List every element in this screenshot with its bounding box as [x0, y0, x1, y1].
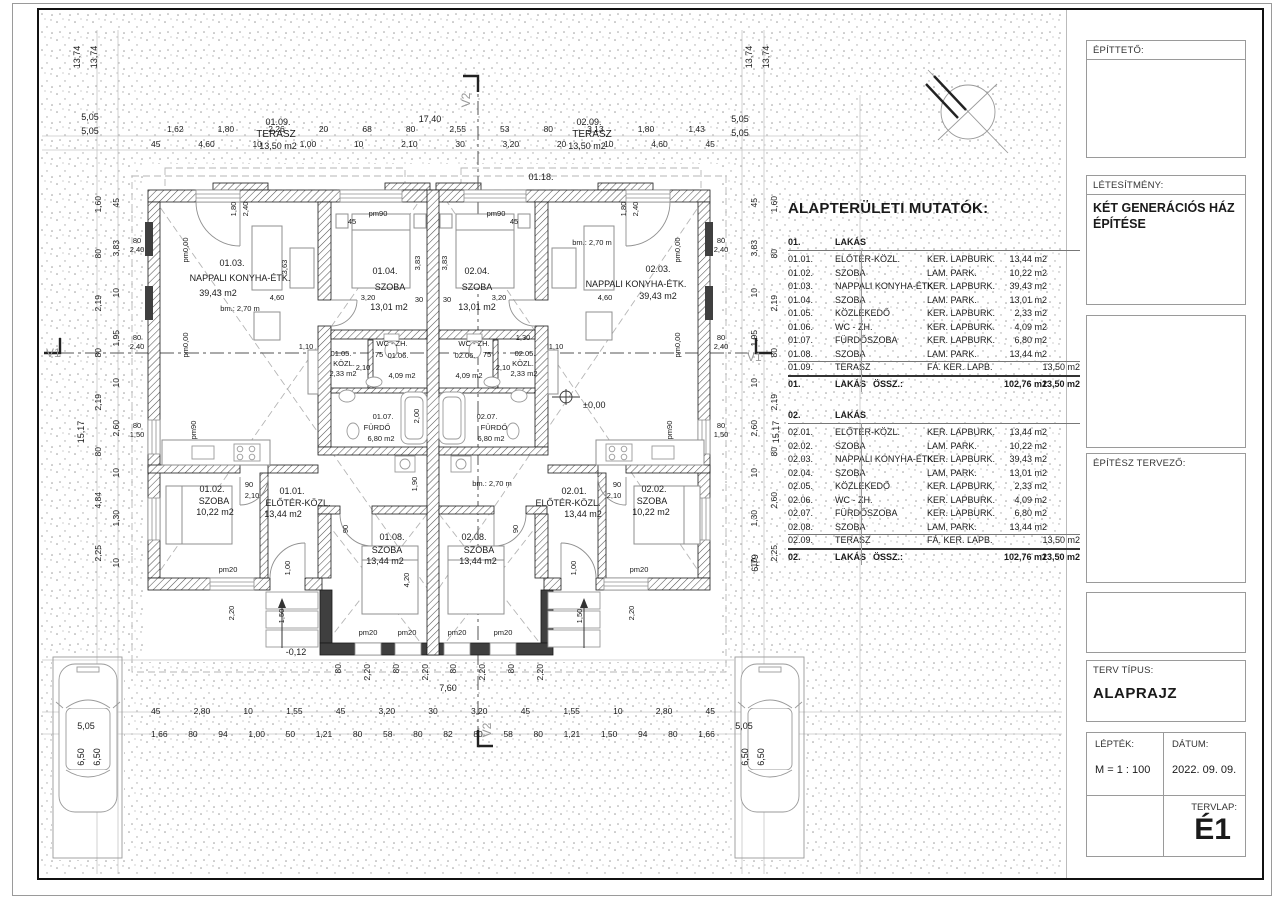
dim-chain-top-2: 454,60101,00102,10303,2020104,6045 — [150, 139, 716, 149]
dimension-value: 80 — [352, 729, 363, 739]
table-cell: 2,33 m2 — [1014, 307, 1047, 321]
project-value: KÉT GENERÁCIÓS HÁZ ÉPÍTÉSE — [1087, 195, 1245, 238]
dimension-value: 1,80 — [637, 124, 656, 134]
svg-text:13,44 m2: 13,44 m2 — [264, 509, 302, 519]
dim-chain-left-outer: 1,60802,19802,19804,842,25 — [92, 196, 104, 562]
svg-text:2,20: 2,20 — [227, 606, 236, 621]
table-cell: LAM. PARK. — [927, 294, 977, 308]
svg-text:02.02.: 02.02. — [641, 484, 666, 494]
svg-text:FÜRDŐ: FÜRDŐ — [364, 423, 391, 432]
dimension-value: 80 — [447, 664, 459, 673]
flat-code: 02. — [788, 409, 801, 423]
dimension-value: 80 — [93, 348, 103, 357]
svg-text:V2: V2 — [459, 92, 473, 107]
dimension-value: 2,25 — [769, 545, 779, 562]
table-cell: 13,44 m2 — [1009, 253, 1047, 267]
dimension-value: 2,80 — [193, 706, 212, 716]
svg-text:30: 30 — [443, 295, 451, 304]
table-cell: FÜRDŐSZOBA — [835, 507, 898, 521]
table-cell: 13,01 m2 — [1009, 294, 1047, 308]
table-cell: LAM. PARK. — [927, 521, 977, 535]
svg-text:13,44 m2: 13,44 m2 — [366, 556, 404, 566]
dim-chain-right-inner: 453,83101,95102,60101,3010 — [748, 198, 760, 568]
total-terrace-area: 13,50 m2 — [1042, 551, 1080, 565]
svg-text:39,43 m2: 39,43 m2 — [199, 288, 237, 298]
svg-text:6,80 m2: 6,80 m2 — [477, 434, 504, 443]
svg-text:02.01.: 02.01. — [561, 486, 586, 496]
svg-text:pm20: pm20 — [630, 565, 649, 574]
svg-text:02.07.: 02.07. — [477, 412, 498, 421]
svg-text:WC - ZH.: WC - ZH. — [458, 339, 489, 348]
flat-1-total: 01. LAKÁS ÖSSZ.: 102,76 m2 13,50 m2 — [788, 378, 1080, 392]
table-cell: 13,44 m2 — [1009, 348, 1047, 362]
dimension-value: 68 — [361, 124, 372, 134]
svg-text:SZOBA: SZOBA — [375, 282, 406, 292]
table-cell: 01.08. — [788, 348, 813, 362]
dimension-value: 1,66 — [697, 729, 716, 739]
table-cell: 01.06. — [788, 321, 813, 335]
svg-text:2,40: 2,40 — [631, 202, 640, 217]
svg-text:pm20: pm20 — [359, 628, 378, 637]
svg-text:2,00: 2,00 — [412, 409, 421, 424]
dimension-value: 80 — [667, 729, 678, 739]
svg-text:17,40: 17,40 — [419, 114, 442, 124]
table-row: 02.09.TERASZFÁ. KER. LAPB.13,50 m2 — [788, 534, 1080, 548]
svg-text:SZOBA: SZOBA — [637, 496, 668, 506]
svg-text:1,80: 1,80 — [619, 202, 628, 217]
svg-text:01.06.: 01.06. — [388, 351, 409, 360]
total-code: 01. — [788, 378, 801, 392]
table-cell: 39,43 m2 — [1009, 280, 1047, 294]
table-cell: KER. LAPBURK. — [927, 253, 995, 267]
dimension-value: 10 — [603, 139, 614, 149]
dimension-value: 10 — [111, 378, 121, 387]
dimension-value: 80 — [533, 729, 544, 739]
dimension-value: 10 — [749, 288, 759, 297]
svg-text:±0,00: ±0,00 — [583, 400, 605, 410]
dimension-value: 82 — [442, 729, 453, 739]
table-cell: 02.06. — [788, 494, 813, 508]
table-cell: 02.01. — [788, 426, 813, 440]
dimension-value: 50 — [285, 729, 296, 739]
table-row: 02.01.ELŐTÉR-KÖZL.KER. LAPBURK.13,44 m2 — [788, 426, 1080, 440]
svg-text:SZOBA: SZOBA — [372, 545, 403, 555]
table-cell: NAPPALI KONYHA-ÉTK. — [835, 453, 936, 467]
table-cell: 4,09 m2 — [1014, 494, 1047, 508]
svg-text:pm0,00: pm0,00 — [181, 332, 190, 357]
table-cell: KÖZLEKEDŐ — [835, 480, 890, 494]
table-cell: 01.04. — [788, 294, 813, 308]
dim-chain-bottom-1: 452,80101,55453,20303,20451,55102,8045 — [150, 706, 716, 716]
svg-text:90: 90 — [511, 525, 520, 533]
svg-text:pm90: pm90 — [487, 209, 506, 218]
svg-text:SZOBA: SZOBA — [462, 282, 493, 292]
table-cell: LAM. PARK. — [927, 267, 977, 281]
svg-text:pm20: pm20 — [494, 628, 513, 637]
table-row: 01.05.KÖZLEKEDŐKER. LAPBURK.2,33 m2 — [788, 307, 1080, 321]
flat-1-header: 01. LAKÁS — [788, 236, 1080, 250]
dimension-value: 1,95 — [749, 330, 759, 347]
table-cell: 01.01. — [788, 253, 813, 267]
dimension-value: 2,19 — [93, 394, 103, 411]
dimension-value: 1,55 — [562, 706, 581, 716]
svg-text:80: 80 — [717, 421, 725, 430]
table-cell: 01.07. — [788, 334, 813, 348]
svg-text:KÖZL.: KÖZL. — [512, 359, 534, 368]
table-row: 01.03.NAPPALI KONYHA-ÉTK.KER. LAPBURK.39… — [788, 280, 1080, 294]
svg-text:13,74: 13,74 — [744, 46, 754, 69]
total-area: 102,76 m2 — [1004, 551, 1047, 565]
table-cell: 13,44 m2 — [1009, 426, 1047, 440]
project-label: LÉTESÍTMÉNY: — [1087, 176, 1245, 195]
svg-text:90: 90 — [613, 480, 621, 489]
dimension-value: 30 — [454, 139, 465, 149]
svg-text:3,20: 3,20 — [361, 293, 376, 302]
table-cell: 01.05. — [788, 307, 813, 321]
dimension-value: 80 — [332, 664, 344, 673]
scale-value: M = 1 : 100 — [1087, 750, 1163, 776]
dimension-value: 45 — [150, 706, 161, 716]
svg-text:02.05.: 02.05. — [515, 349, 536, 358]
svg-text:1,10: 1,10 — [299, 342, 314, 351]
total-label: ÖSSZ.: — [873, 551, 903, 565]
table-row: 02.04.SZOBALAM. PARK.13,01 m2 — [788, 467, 1080, 481]
svg-text:6,50: 6,50 — [76, 748, 86, 766]
svg-text:2,40: 2,40 — [241, 202, 250, 217]
svg-text:02.03.: 02.03. — [645, 264, 670, 274]
dimension-value: 2,10 — [400, 139, 419, 149]
titleblock-project-box: LÉTESÍTMÉNY: KÉT GENERÁCIÓS HÁZ ÉPÍTÉSE — [1086, 175, 1246, 305]
table-cell: KÖZLEKEDŐ — [835, 307, 890, 321]
table-cell: 02.08. — [788, 521, 813, 535]
dimension-value: 1,62 — [166, 124, 185, 134]
svg-text:45: 45 — [510, 217, 518, 226]
svg-text:1,10: 1,10 — [549, 342, 564, 351]
car-left — [56, 664, 120, 812]
dimension-value: 2,80 — [655, 706, 674, 716]
svg-text:2,40: 2,40 — [714, 342, 729, 351]
dimension-value: 3,20 — [378, 706, 397, 716]
svg-text:4,09 m2: 4,09 m2 — [388, 371, 415, 380]
dimension-value: 80 — [93, 249, 103, 258]
svg-text:NAPPALI KONYHA-ÉTK.: NAPPALI KONYHA-ÉTK. — [190, 273, 291, 283]
svg-text:1,80: 1,80 — [229, 202, 238, 217]
table-cell: KER. LAPBURK. — [927, 426, 995, 440]
svg-text:3,83: 3,83 — [413, 256, 422, 271]
project-value-line1: KÉT GENERÁCIÓS HÁZ — [1093, 201, 1239, 217]
table-row: 02.03.NAPPALI KONYHA-ÉTK.KER. LAPBURK.39… — [788, 453, 1080, 467]
area-table-title: ALAPTERÜLETI MUTATÓK: — [788, 200, 988, 217]
table-row: 02.08.SZOBALAM. PARK.13,44 m2 — [788, 521, 1080, 535]
titleblock-empty-box-1 — [1086, 315, 1246, 448]
table-cell: KER. LAPBURK. — [927, 494, 995, 508]
svg-text:bm.: 2,70 m: bm.: 2,70 m — [572, 238, 612, 247]
svg-text:13,44 m2: 13,44 m2 — [459, 556, 497, 566]
dimension-value: 1,66 — [150, 729, 169, 739]
svg-text:ELŐTÉR-KÖZL.: ELŐTÉR-KÖZL. — [265, 498, 330, 508]
table-row: 01.01.ELŐTÉR-KÖZL.KER. LAPBURK.13,44 m2 — [788, 253, 1080, 267]
dim-chain-bottom-2: 1,6680941,00501,21805880828058801,211,50… — [150, 729, 716, 739]
table-cell: 4,09 m2 — [1014, 321, 1047, 335]
svg-text:90: 90 — [245, 480, 253, 489]
svg-text:1,90: 1,90 — [410, 477, 419, 492]
scale-label: LÉPTÉK: — [1087, 733, 1163, 750]
dimension-value: 45 — [704, 139, 715, 149]
dim-chain-right-outer: 1,60802,19802,19802,602,25 — [768, 196, 780, 562]
table-cell: 6,80 m2 — [1014, 334, 1047, 348]
svg-text:2,40: 2,40 — [130, 342, 145, 351]
table-cell: 13,50 m2 — [1042, 361, 1080, 375]
table-cell: WC - ZH. — [835, 321, 873, 335]
table-cell: KER. LAPBURK. — [927, 307, 995, 321]
svg-text:10,22 m2: 10,22 m2 — [632, 507, 670, 517]
svg-text:SZOBA: SZOBA — [464, 545, 495, 555]
svg-text:13,01 m2: 13,01 m2 — [458, 302, 496, 312]
svg-text:80: 80 — [717, 236, 725, 245]
dimension-value: 3,20 — [502, 139, 521, 149]
dimension-value: 4,84 — [93, 492, 103, 509]
area-table: ALAPTERÜLETI MUTATÓK: 01. LAKÁS 01.01.EL… — [788, 200, 1080, 580]
svg-text:pm0,00: pm0,00 — [181, 237, 190, 262]
total-label: ÖSSZ.: — [873, 378, 903, 392]
svg-text:30: 30 — [415, 295, 423, 304]
table-cell: 10,22 m2 — [1009, 440, 1047, 454]
dim-chain-top-1: 1,621,802,262068802,5553803,131,801,43 — [166, 124, 706, 134]
dimension-value: 80 — [390, 664, 402, 673]
svg-text:pm90: pm90 — [665, 421, 674, 440]
dimension-value: 2,55 — [448, 124, 467, 134]
dimension-value: 45 — [520, 706, 531, 716]
svg-text:bm.: 2,70 m: bm.: 2,70 m — [220, 304, 260, 313]
svg-text:02.06.: 02.06. — [455, 351, 476, 360]
dimension-value: 10 — [242, 706, 253, 716]
dimension-value: 2,19 — [769, 295, 779, 312]
table-cell: 02.02. — [788, 440, 813, 454]
dimension-value: 45 — [749, 198, 759, 207]
dimension-value: 80 — [505, 664, 517, 673]
titleblock-architect-box: ÉPÍTÉSZ TERVEZŐ: — [1086, 453, 1246, 583]
svg-text:WC - ZH.: WC - ZH. — [376, 339, 407, 348]
car-right — [738, 664, 802, 812]
table-cell: ELŐTÉR-KÖZL. — [835, 253, 900, 267]
table-row: 01.09.TERASZFÁ. KER. LAPB.13,50 m2 — [788, 361, 1080, 375]
dimension-value: 45 — [111, 198, 121, 207]
table-row: 01.02.SZOBALAM. PARK.10,22 m2 — [788, 267, 1080, 281]
svg-text:6,80 m2: 6,80 m2 — [367, 434, 394, 443]
dimension-value: 1,60 — [769, 196, 779, 213]
dimension-value: 80 — [769, 348, 779, 357]
dimension-value: 2,19 — [769, 394, 779, 411]
dimension-value: 20 — [318, 124, 329, 134]
svg-text:01.07.: 01.07. — [373, 412, 394, 421]
dimension-value: 80 — [769, 249, 779, 258]
svg-text:01.05.: 01.05. — [331, 349, 352, 358]
svg-text:4,60: 4,60 — [598, 293, 613, 302]
plan-type-label: TERV TÍPUS: — [1087, 661, 1245, 679]
dimension-value: 1,95 — [111, 330, 121, 347]
svg-text:6,50: 6,50 — [740, 748, 750, 766]
titleblock-plan-type-box: TERV TÍPUS: ALAPRAJZ — [1086, 660, 1246, 722]
svg-text:SZOBA: SZOBA — [199, 496, 230, 506]
dimension-value: 1,80 — [217, 124, 236, 134]
dimension-value: 1,21 — [563, 729, 582, 739]
dimension-value: 45 — [335, 706, 346, 716]
dim-chain-left-inner: 453,83101,95102,60101,3010 — [110, 198, 122, 568]
svg-text:02.08.: 02.08. — [461, 532, 486, 542]
drawing-sheet: 01.03. NAPPALI KONYHA-ÉTK. 39,43 m2 02.0… — [0, 0, 1280, 911]
dimension-value: 45 — [150, 139, 161, 149]
dimension-value: 1,00 — [299, 139, 318, 149]
table-cell: KER. LAPBURK. — [927, 334, 995, 348]
table-cell: KER. LAPBURK. — [927, 507, 995, 521]
svg-text:80: 80 — [133, 421, 141, 430]
sheet-number: É1 — [1164, 813, 1245, 847]
table-cell: 01.03. — [788, 280, 813, 294]
total-area: 102,76 m2 — [1004, 378, 1047, 392]
date-value: 2022. 09. 09. — [1164, 750, 1245, 776]
total-code: 02. — [788, 551, 801, 565]
dimension-value: 2,20 — [419, 664, 431, 681]
dimension-value: 1,43 — [687, 124, 706, 134]
svg-text:80: 80 — [133, 333, 141, 342]
dimension-value: 80 — [543, 124, 554, 134]
svg-text:2,20: 2,20 — [627, 606, 636, 621]
table-cell: KER. LAPBURK. — [927, 321, 995, 335]
dimension-value: 2,60 — [749, 420, 759, 437]
table-cell: NAPPALI KONYHA-ÉTK. — [835, 280, 936, 294]
dimension-value: 1,30 — [111, 510, 121, 527]
table-row: 02.07.FÜRDŐSZOBAKER. LAPBURK.6,80 m2 — [788, 507, 1080, 521]
svg-text:1,00: 1,00 — [569, 561, 578, 576]
dim-chain-window-bottom: 802,20802,20802,20802,20 — [332, 664, 546, 692]
dimension-value: 2,19 — [93, 295, 103, 312]
svg-text:01.03.: 01.03. — [219, 258, 244, 268]
table-cell: 02.04. — [788, 467, 813, 481]
svg-text:5,05: 5,05 — [77, 721, 95, 731]
svg-text:01.01.: 01.01. — [279, 486, 304, 496]
svg-text:KÖZL.: KÖZL. — [333, 359, 355, 368]
dimension-value: 80 — [93, 447, 103, 456]
flat-name: LAKÁS — [835, 236, 866, 250]
svg-text:2,40: 2,40 — [130, 245, 145, 254]
svg-text:5,05: 5,05 — [81, 126, 99, 136]
date-cell: DÁTUM: 2022. 09. 09. — [1163, 733, 1245, 795]
flat-code: 01. — [788, 236, 801, 250]
table-row: 01.07.FÜRDŐSZOBAKER. LAPBURK.6,80 m2 — [788, 334, 1080, 348]
table-cell: 39,43 m2 — [1009, 453, 1047, 467]
titleblock-client-box: ÉPÍTTETŐ: — [1086, 40, 1246, 158]
sheet-label: TERVLAP: — [1164, 796, 1245, 813]
table-cell: 02.09. — [788, 534, 813, 548]
dimension-value: 3,83 — [749, 240, 759, 257]
dimension-value: 10 — [749, 558, 759, 567]
svg-text:45: 45 — [348, 217, 356, 226]
svg-text:80: 80 — [133, 236, 141, 245]
dimension-value: 1,21 — [315, 729, 334, 739]
svg-text:80: 80 — [717, 333, 725, 342]
dimension-value: 2,20 — [361, 664, 373, 681]
dimension-value: 94 — [217, 729, 228, 739]
svg-text:3,63: 3,63 — [280, 260, 289, 275]
svg-text:ELŐTÉR-KÖZL.: ELŐTÉR-KÖZL. — [535, 498, 600, 508]
table-cell: ELŐTÉR-KÖZL. — [835, 426, 900, 440]
table-cell: 13,44 m2 — [1009, 521, 1047, 535]
table-row: 01.04.SZOBALAM. PARK.13,01 m2 — [788, 294, 1080, 308]
svg-text:pm20: pm20 — [219, 565, 238, 574]
dimension-value: 58 — [502, 729, 513, 739]
dimension-value: 10 — [251, 139, 262, 149]
svg-text:13,74: 13,74 — [89, 46, 99, 69]
svg-text:01.04.: 01.04. — [372, 266, 397, 276]
svg-text:01.18.: 01.18. — [528, 172, 553, 182]
svg-text:02.04.: 02.04. — [464, 266, 489, 276]
svg-text:6,50: 6,50 — [92, 748, 102, 766]
svg-text:75: 75 — [375, 350, 383, 359]
dimension-value: 1,60 — [93, 196, 103, 213]
dimension-value: 10 — [749, 378, 759, 387]
svg-text:2,33 m2: 2,33 m2 — [510, 369, 537, 378]
titleblock-scale-date-box: LÉPTÉK: M = 1 : 100 DÁTUM: 2022. 09. 09.… — [1086, 732, 1246, 857]
svg-text:4,09 m2: 4,09 m2 — [455, 371, 482, 380]
svg-text:6,50: 6,50 — [756, 748, 766, 766]
dimension-value: 10 — [111, 558, 121, 567]
dimension-value: 3,13 — [586, 124, 605, 134]
svg-text:1,30: 1,30 — [516, 333, 531, 342]
svg-text:2,33 m2: 2,33 m2 — [329, 369, 356, 378]
flat-2-header: 02. LAKÁS — [788, 409, 1080, 423]
dimension-value: 45 — [705, 706, 716, 716]
svg-text:2,40: 2,40 — [714, 245, 729, 254]
dimension-value: 2,60 — [769, 492, 779, 509]
svg-text:10,22 m2: 10,22 m2 — [196, 507, 234, 517]
table-row: 02.05.KÖZLEKEDŐKER. LAPBURK.2,33 m2 — [788, 480, 1080, 494]
svg-text:3,83: 3,83 — [440, 256, 449, 271]
dimension-value: 53 — [499, 124, 510, 134]
empty-cell — [1087, 795, 1163, 856]
dimension-value: 94 — [637, 729, 648, 739]
dimension-value: 2,26 — [267, 124, 286, 134]
flat-name: LAKÁS — [835, 409, 866, 423]
dimension-value: 2,20 — [534, 664, 546, 681]
scale-cell: LÉPTÉK: M = 1 : 100 — [1087, 733, 1163, 795]
table-cell: FÜRDŐSZOBA — [835, 334, 898, 348]
table-cell: 10,22 m2 — [1009, 267, 1047, 281]
dimension-value: 1,30 — [749, 510, 759, 527]
table-cell: FÁ. KER. LAPB. — [927, 534, 993, 548]
total-terrace-area: 13,50 m2 — [1042, 378, 1080, 392]
dimension-value: 58 — [382, 729, 393, 739]
table-cell: KER. LAPBURK. — [927, 280, 995, 294]
svg-text:V1: V1 — [46, 346, 61, 360]
svg-text:1,50: 1,50 — [575, 609, 584, 624]
table-cell: 02.05. — [788, 480, 813, 494]
plan-type-value: ALAPRAJZ — [1087, 679, 1245, 710]
svg-text:5,05: 5,05 — [731, 128, 749, 138]
flat-1-rows: 01.01.ELŐTÉR-KÖZL.KER. LAPBURK.13,44 m20… — [788, 253, 1080, 375]
svg-text:NAPPALI KONYHA-ÉTK.: NAPPALI KONYHA-ÉTK. — [586, 279, 687, 289]
table-cell: KER. LAPBURK. — [927, 453, 995, 467]
flat-2-total: 02. LAKÁS ÖSSZ.: 102,76 m2 13,50 m2 — [788, 551, 1080, 565]
dimension-value: 80 — [472, 729, 483, 739]
dimension-value: 4,60 — [650, 139, 669, 149]
table-cell: 02.07. — [788, 507, 813, 521]
dimension-value: 10 — [749, 468, 759, 477]
svg-text:4,20: 4,20 — [402, 573, 411, 588]
dimension-value: 3,20 — [470, 706, 489, 716]
dimension-value: 80 — [769, 447, 779, 456]
project-value-line2: ÉPÍTÉSE — [1093, 217, 1239, 233]
date-label: DÁTUM: — [1164, 733, 1245, 750]
